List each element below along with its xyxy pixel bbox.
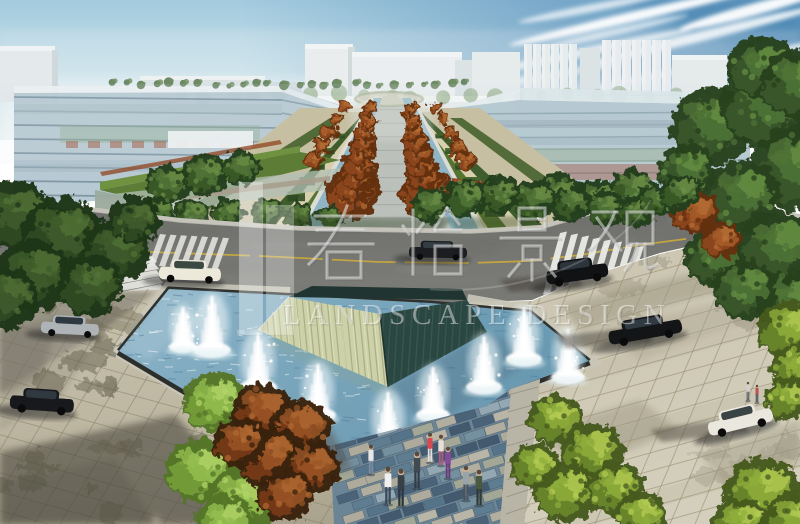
svg-text:LANDSCAPE DESIGN: LANDSCAPE DESIGN bbox=[284, 301, 672, 333]
